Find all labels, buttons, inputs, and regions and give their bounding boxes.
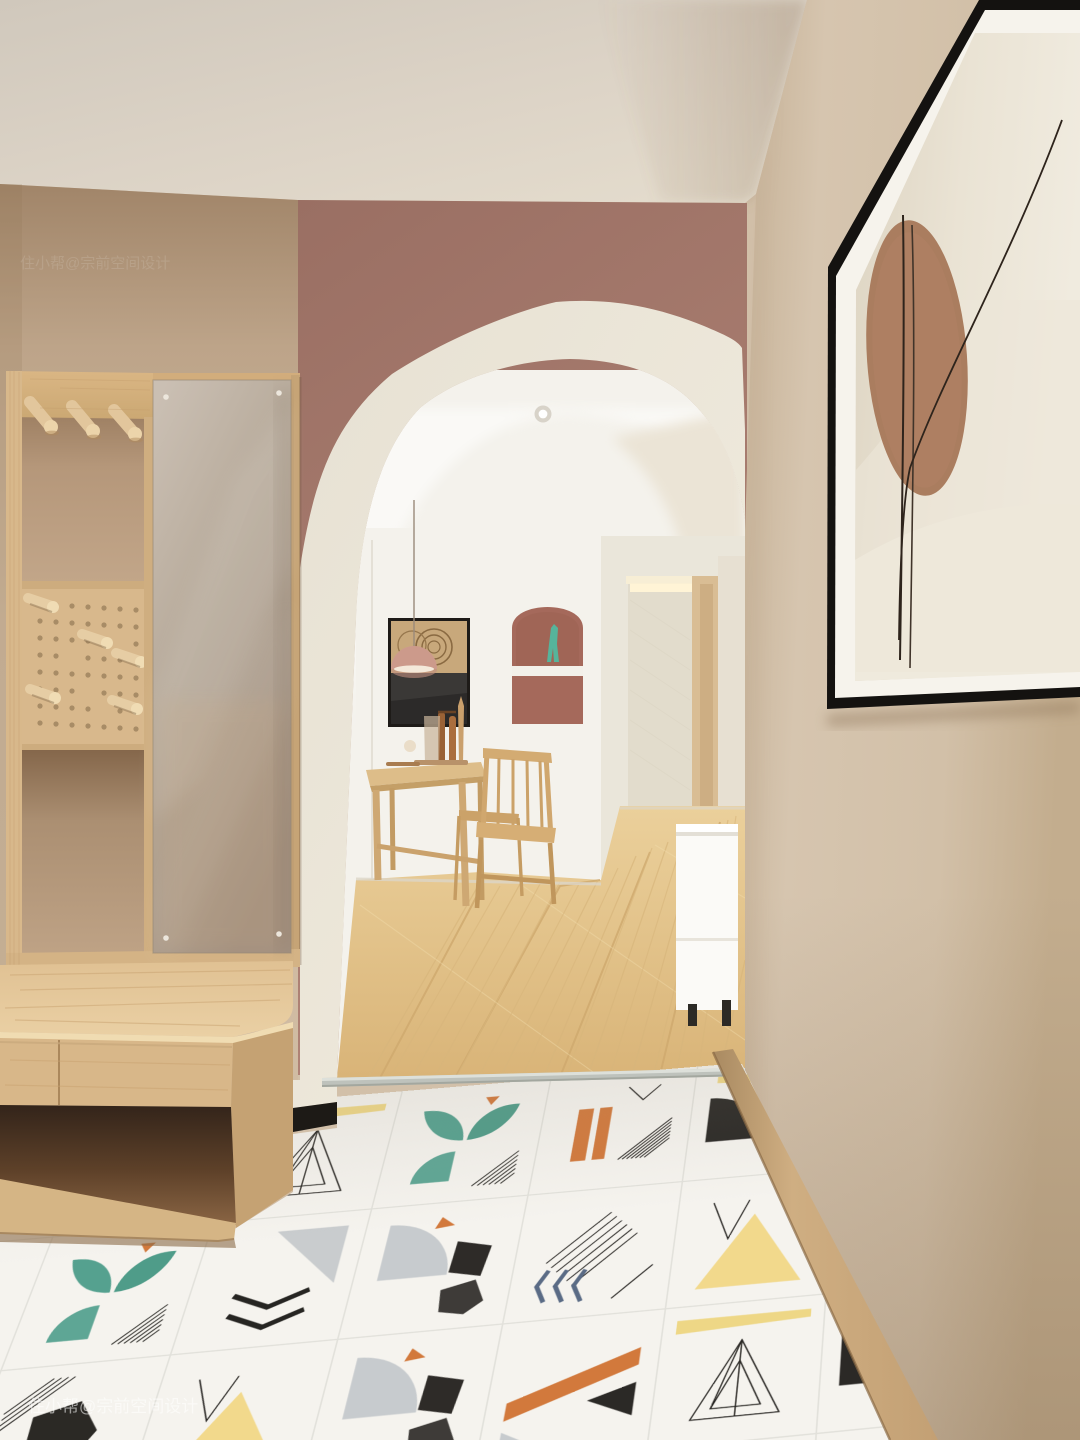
svg-text:住小帮@宗前空间设计: 住小帮@宗前空间设计 (28, 1397, 198, 1416)
svg-text:住小帮@宗前空间设计: 住小帮@宗前空间设计 (20, 254, 170, 272)
